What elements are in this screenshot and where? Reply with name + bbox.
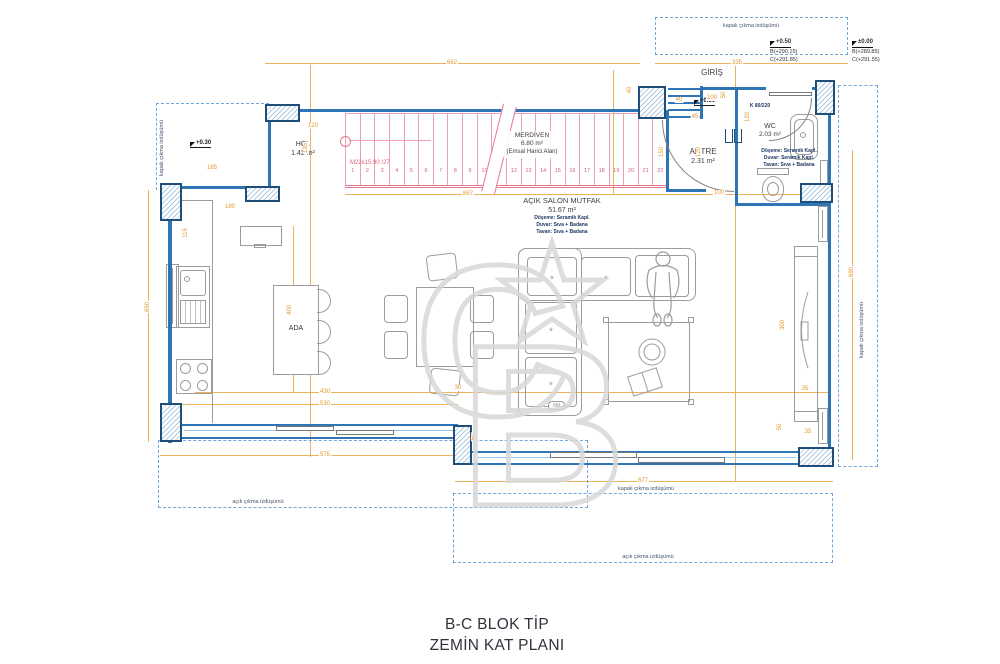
sink-faucet: [184, 276, 190, 282]
column-right-top: [815, 80, 835, 115]
tv-unit: [794, 246, 818, 422]
wall-wc-top-left: [700, 87, 766, 90]
dimension-label: 335: [731, 60, 743, 66]
dimension-label: 45: [691, 114, 700, 120]
dining-chair-left-1: [384, 295, 408, 323]
stair-tread-number: 19: [613, 168, 619, 174]
dimension-label: 430: [319, 389, 331, 395]
elevation-2-c: C(+291.55): [852, 56, 880, 64]
stair-tread-number: 4: [395, 168, 398, 174]
dim-line-867: [345, 194, 825, 195]
dimension-label: 575: [319, 452, 331, 458]
dimension-label: 662: [446, 60, 458, 66]
projection-label-right: kapalı çıkma izdüşümü: [859, 302, 865, 358]
salon-name: AÇIK SALON MUTFAK: [523, 196, 601, 206]
cushion-star-icon: *: [550, 275, 554, 286]
stair-tread-number: 12: [511, 168, 517, 174]
wc-name: WC: [759, 122, 781, 131]
elevation-2-b: B(+289.85): [852, 48, 880, 56]
tv-unit-cap-top: [794, 246, 818, 257]
dimension-label: 100: [706, 95, 718, 101]
dimension-label: 530: [319, 401, 331, 407]
wc-spec-wall: Duvar: Seramik Kapl.: [761, 155, 817, 162]
column-entry: [638, 86, 666, 119]
porch-step-2: [668, 95, 700, 97]
stair-tread-number: 7: [439, 168, 442, 174]
stair-tread: 1: [345, 114, 360, 185]
dimension-label: 677: [637, 478, 649, 484]
room-label-merdiven: MERDİVEN 6.80 m² (Emsal Harici Alan): [503, 131, 560, 158]
column-right-bottom: [798, 447, 834, 467]
dimension-label: 120: [307, 123, 319, 129]
sofa-badge-text: 6M: [553, 403, 560, 409]
floor-plan-canvas: kapalı çıkma izdüşümü kapalı çıkma izdüş…: [0, 0, 1000, 664]
room-label-antre: ANTRE 2.31 m²: [689, 147, 716, 166]
sliding-panel-1: [276, 426, 334, 431]
dimension-label: 120: [696, 146, 702, 158]
sink-drainer: [180, 300, 206, 324]
drawing-title: B-C BLOK TİP ZEMİN KAT PLANI: [430, 615, 565, 657]
dimension-label: 150: [659, 146, 665, 158]
fridge-handle: [254, 244, 266, 248]
dimension-label: 115: [183, 227, 189, 239]
wall-antre-wc-divider: [735, 90, 738, 205]
dim-line-335: [655, 63, 848, 64]
stair-tread: 4: [389, 114, 404, 185]
stair-tread: 18: [594, 114, 609, 185]
stair-start-marker: [340, 136, 351, 147]
stair-tread-number: 22: [657, 168, 663, 174]
stair-tread-number: 16: [569, 168, 575, 174]
dimension-label: 35: [804, 429, 813, 435]
wall-right-outer: [828, 87, 831, 467]
coffee-table: [608, 322, 690, 402]
stair-tread-number: 15: [555, 168, 561, 174]
stair-tread: 21: [638, 114, 653, 185]
coffee-table-corner-4: [688, 399, 694, 405]
stair-walkline: [349, 140, 431, 141]
dimension-label: 135: [303, 142, 309, 154]
dining-chair-bottom: [429, 368, 462, 397]
stair-tread-number: 2: [366, 168, 369, 174]
elevation-1-b: B(+290.15): [770, 48, 798, 56]
elevation-marker-left: +0.30: [190, 140, 211, 148]
stair-tread: 9: [462, 114, 477, 185]
wc-spec-ceiling: Tavan: Sıva + Badana: [761, 162, 817, 169]
sofa-badge: 6M: [548, 401, 565, 410]
stair-tread: 5: [404, 114, 419, 185]
stair-tread-number: 21: [643, 168, 649, 174]
stair-tread-number: 17: [584, 168, 590, 174]
dimension-label: 120: [745, 111, 751, 123]
elevation-1-main: +0.50: [770, 38, 791, 48]
dimension-label: 300: [780, 319, 786, 331]
stair-tread: 3: [374, 114, 389, 185]
wall-antre-bottom: [666, 189, 706, 192]
stair-spec-label: M22x15.90 /27: [350, 160, 390, 166]
stair-tread: 8: [447, 114, 462, 185]
tv-unit-cap-bottom: [794, 411, 818, 422]
cushion-star-icon: *: [549, 327, 553, 338]
dimension-label: 400: [287, 304, 293, 316]
dimension-label: 185: [206, 165, 218, 171]
merdiven-area: 6.80 m²: [506, 140, 557, 148]
wc-spec-floor: Döşeme: Seramik Kapl.: [761, 148, 817, 155]
fridge: [240, 226, 282, 246]
stair-tread-number: 20: [628, 168, 634, 174]
wc-door-label: K 80/220: [750, 103, 770, 110]
stair-tread-number: 1: [351, 168, 354, 174]
entry-door-leaf-1: [725, 129, 733, 143]
salon-spec-wall: Duvar: Sıva + Badana: [523, 222, 601, 229]
stair-tread-number: 6: [424, 168, 427, 174]
wall-niche-top-line: [822, 210, 823, 238]
stair-tread: 7: [433, 114, 448, 185]
sliding-panel-4: [638, 457, 725, 463]
room-label-wc: WC 2.03 m²: [759, 122, 781, 140]
coffee-table-corner-1: [603, 317, 609, 323]
stool-1: [317, 289, 331, 313]
room-label-salon: AÇIK SALON MUTFAK 51.67 m² Döşeme: Seram…: [523, 196, 601, 236]
dimension-label: 50: [471, 433, 477, 442]
stair-tread-number: 9: [468, 168, 471, 174]
column-bottom-middle: [453, 425, 472, 465]
elevation-block-1: +0.50 B(+290.15) C(+291.85): [770, 38, 798, 65]
cushion-star-icon: *: [549, 381, 553, 392]
dim-line-530: [175, 404, 458, 405]
entry-door-leaf-2: [734, 129, 742, 143]
sliding-panel-2: [336, 430, 394, 435]
kitchen-window-mullion: [172, 268, 173, 324]
dimension-label: 30: [454, 385, 463, 391]
wall-niche-bottom: [818, 408, 828, 444]
dining-chair-top: [426, 252, 459, 281]
projection-label-acik-left: açık çıkma izdüşümü: [232, 499, 283, 505]
stair-tread: 20: [623, 114, 638, 185]
elevation-block-2: ±0.00 B(+289.85) C(+291.55): [852, 38, 880, 65]
dimension-label: 100: [713, 190, 725, 196]
salon-spec-ceiling: Tavan: Sıva + Badana: [523, 229, 601, 236]
dimension-label: 50: [721, 91, 727, 100]
stair-tread: 17: [579, 114, 594, 185]
salon-spec-floor: Döşeme: Seramik Kapl.: [523, 215, 601, 222]
projection-label-top: kapalı çıkma izdüşümü: [723, 23, 779, 29]
antre-name: ANTRE: [689, 147, 716, 157]
dining-table: [416, 287, 474, 367]
window-wall-right-inner: [470, 463, 800, 465]
wc-area: 2.03 m²: [759, 131, 781, 139]
drawing-title-line1: B-C BLOK TİP: [430, 615, 565, 636]
stair-tread-number: 5: [410, 168, 413, 174]
elevation-2-main: ±0.00: [852, 38, 873, 48]
window-glass-right: [478, 457, 796, 458]
stair-tread-number: 18: [599, 168, 605, 174]
porch-step-4: [668, 109, 700, 111]
projection-label-kapali-bottom: kapalı çıkma izdüşümü: [618, 486, 674, 492]
wc-specs: Döşeme: Seramik Kapl. Duvar: Seramik Kap…: [761, 148, 817, 169]
dimension-label: 50: [777, 423, 783, 432]
wc-door-leaf: [769, 92, 812, 96]
projection-line-left: [156, 103, 269, 190]
dimension-label: 35: [801, 386, 810, 392]
projection-label-acik-bottom: açık çıkma izdüşümü: [622, 554, 673, 560]
stool-3: [317, 351, 331, 375]
washbasin-drain: [800, 132, 806, 138]
merdiven-note: (Emsal Harici Alan): [506, 149, 557, 157]
dim-line-650: [148, 190, 149, 442]
stair-tread-number: 13: [525, 168, 531, 174]
projection-box-bottom-right: [453, 493, 833, 563]
column-right-upper: [800, 183, 833, 203]
merdiven-name: MERDİVEN: [506, 132, 557, 140]
stair-tread-number: 8: [454, 168, 457, 174]
stove-burner-3: [180, 380, 191, 391]
cushion-star-icon: *: [604, 275, 608, 286]
toilet-tank: [757, 168, 789, 175]
antre-area: 2.31 m²: [689, 157, 716, 166]
stair-tread: 6: [418, 114, 433, 185]
stair-tread: 19: [609, 114, 624, 185]
dimension-label: 40: [675, 97, 684, 103]
projection-box-right: [838, 85, 878, 467]
room-label-giris: GİRİŞ: [701, 68, 723, 78]
wall-niche-top: [818, 206, 828, 242]
projection-label-far-left: kapalı çıkma izdüşümü: [159, 120, 165, 176]
drawing-title-line2: ZEMİN KAT PLANI: [430, 636, 565, 657]
island-label: ADA: [289, 324, 303, 333]
column-left-upper: [160, 183, 182, 221]
sliding-panel-3: [550, 452, 637, 458]
porch-step-1: [668, 88, 700, 90]
stair-tread: 2: [360, 114, 375, 185]
stool-2: [317, 320, 331, 344]
dim-line-430: [195, 392, 828, 393]
sofa-cushion-3: [635, 255, 689, 297]
kitchen-counter-edge: [212, 200, 213, 423]
stove-burner-4: [197, 380, 208, 391]
stove-burner-2: [197, 363, 208, 374]
wall-top-main: [268, 109, 652, 112]
coffee-table-corner-3: [603, 399, 609, 405]
wall-wc-bottom: [735, 203, 831, 206]
dimension-label: 867: [462, 191, 474, 197]
wall-niche-bottom-line: [822, 412, 823, 440]
coffee-table-corner-2: [688, 317, 694, 323]
column-left-lower: [160, 403, 182, 442]
column-kitchen: [245, 186, 280, 202]
dimension-label: 690: [849, 266, 855, 278]
dimension-label: 650: [145, 301, 151, 313]
stair-tread: 16: [565, 114, 580, 185]
stove-burner-1: [180, 363, 191, 374]
salon-area: 51.67 m²: [523, 206, 601, 215]
column-hol-top: [265, 104, 300, 122]
dimension-label: 180: [224, 204, 236, 210]
window-wall-left-inner: [174, 437, 458, 439]
stair-tread-number: 3: [381, 168, 384, 174]
dining-chair-left-2: [384, 331, 408, 359]
toilet-bowl-inner: [767, 182, 779, 196]
stair-tread-number: 14: [540, 168, 546, 174]
dimension-label: 40: [627, 86, 633, 95]
elevation-1-c: C(+291.85): [770, 56, 798, 64]
sink-basin: [180, 270, 206, 296]
